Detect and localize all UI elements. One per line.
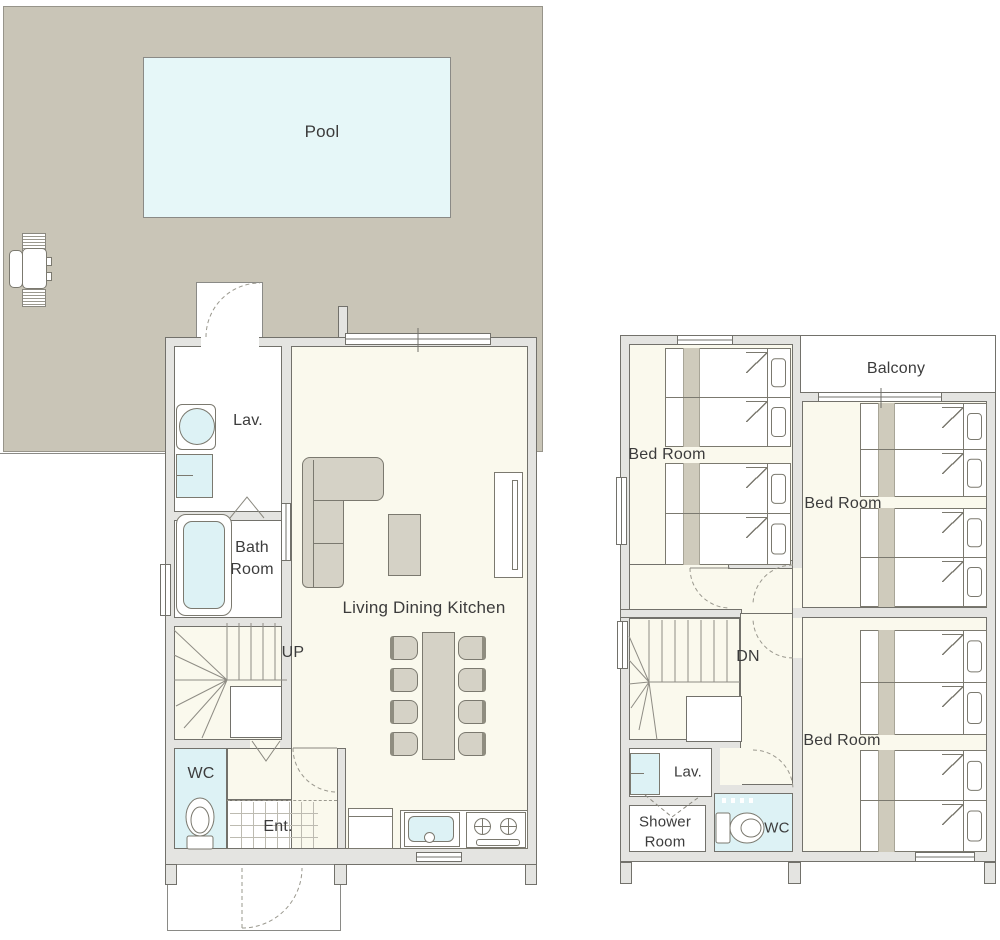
bathroom-label-line1: Bath (235, 539, 269, 557)
tv-board-icon (494, 472, 523, 578)
coffee-table-icon (388, 514, 421, 576)
shower-label-line2: Room (645, 834, 686, 851)
bedroom3-label: Bed Room (803, 732, 880, 750)
wc-label-1f: WC (187, 765, 214, 783)
burner-icon (474, 818, 491, 835)
entrance-porch (167, 864, 341, 931)
grill-slot (476, 839, 520, 846)
washing-machine-icon (176, 454, 213, 498)
chair-icon (458, 668, 486, 692)
dining-table-icon (422, 632, 455, 760)
chair-icon (390, 636, 418, 660)
sink-drain (424, 832, 435, 843)
wall-stub (165, 864, 177, 885)
washer-handle (630, 773, 644, 774)
washer-handle (176, 475, 193, 476)
bed-icon (860, 403, 987, 497)
wall-stub (788, 862, 801, 884)
sliding-door-balcony-icon (818, 392, 942, 402)
entrance-label: Ent. (263, 818, 292, 836)
chair-icon (458, 700, 486, 724)
sink-bowl (179, 408, 215, 445)
room-wc-1f (174, 748, 227, 849)
wall-stub (620, 862, 632, 884)
window-kitchen-icon (416, 852, 462, 862)
chair-icon (390, 700, 418, 724)
closet-under-stairs (230, 686, 282, 738)
chair-icon (390, 668, 418, 692)
bedroom2-label: Bed Room (804, 495, 881, 513)
towel-bar-dots (722, 798, 754, 803)
hallway-2f-washroom (720, 748, 742, 785)
ldk-label: Living Dining Kitchen (343, 598, 506, 618)
burner-icon (500, 818, 517, 835)
hallway-2f (740, 613, 793, 785)
wc-label-2f: WC (764, 820, 789, 837)
washing-machine-icon (630, 753, 660, 795)
door-opening (201, 337, 259, 347)
window-bedroom3-icon (915, 852, 975, 862)
bathroom-label-line2: Room (230, 561, 273, 579)
window-bedroom1-icon (677, 335, 733, 345)
chair-icon (458, 732, 486, 756)
pool-label: Pool (305, 122, 340, 142)
door-gap (793, 568, 802, 608)
wall-hall-ldk (337, 748, 346, 849)
tv-icon (512, 480, 518, 570)
wall-above-stairs (620, 609, 742, 618)
chair-icon (458, 636, 486, 660)
refrigerator-icon (348, 808, 393, 849)
chair-icon (390, 732, 418, 756)
lavatory2-label: Lav. (674, 764, 702, 781)
landing-2f (686, 696, 742, 742)
wall-stub (334, 864, 347, 885)
window-left-2f-icon (616, 477, 627, 545)
door-gap (793, 618, 802, 658)
bed-icon (860, 630, 987, 735)
bed-icon (665, 348, 791, 447)
pocket-door-ldk-icon (281, 503, 291, 561)
entrance-step-line (227, 800, 337, 801)
floor-plan: Pool (0, 0, 1000, 940)
deck-edge-line (0, 453, 165, 454)
deck-entry-vestibule (196, 282, 263, 338)
sliding-door-deck-icon (345, 333, 491, 345)
door-gap (250, 740, 280, 748)
up-label: UP (282, 644, 305, 662)
balcony-label: Balcony (867, 360, 925, 378)
window-bath-icon (160, 564, 171, 616)
window-left-2f-icon (617, 621, 628, 669)
dn-label: DN (736, 648, 760, 666)
bathtub-inner (183, 521, 225, 609)
lavatory-label: Lav. (233, 412, 263, 430)
bed-icon (860, 750, 987, 852)
bed-icon (665, 463, 791, 565)
wall-stub (525, 864, 537, 885)
bedroom1-label: Bed Room (628, 446, 705, 464)
shower-label-line1: Shower (639, 814, 691, 831)
refrigerator-line (348, 816, 393, 817)
wall-stub (984, 862, 996, 884)
bed-icon (860, 508, 987, 607)
pool (143, 57, 451, 218)
